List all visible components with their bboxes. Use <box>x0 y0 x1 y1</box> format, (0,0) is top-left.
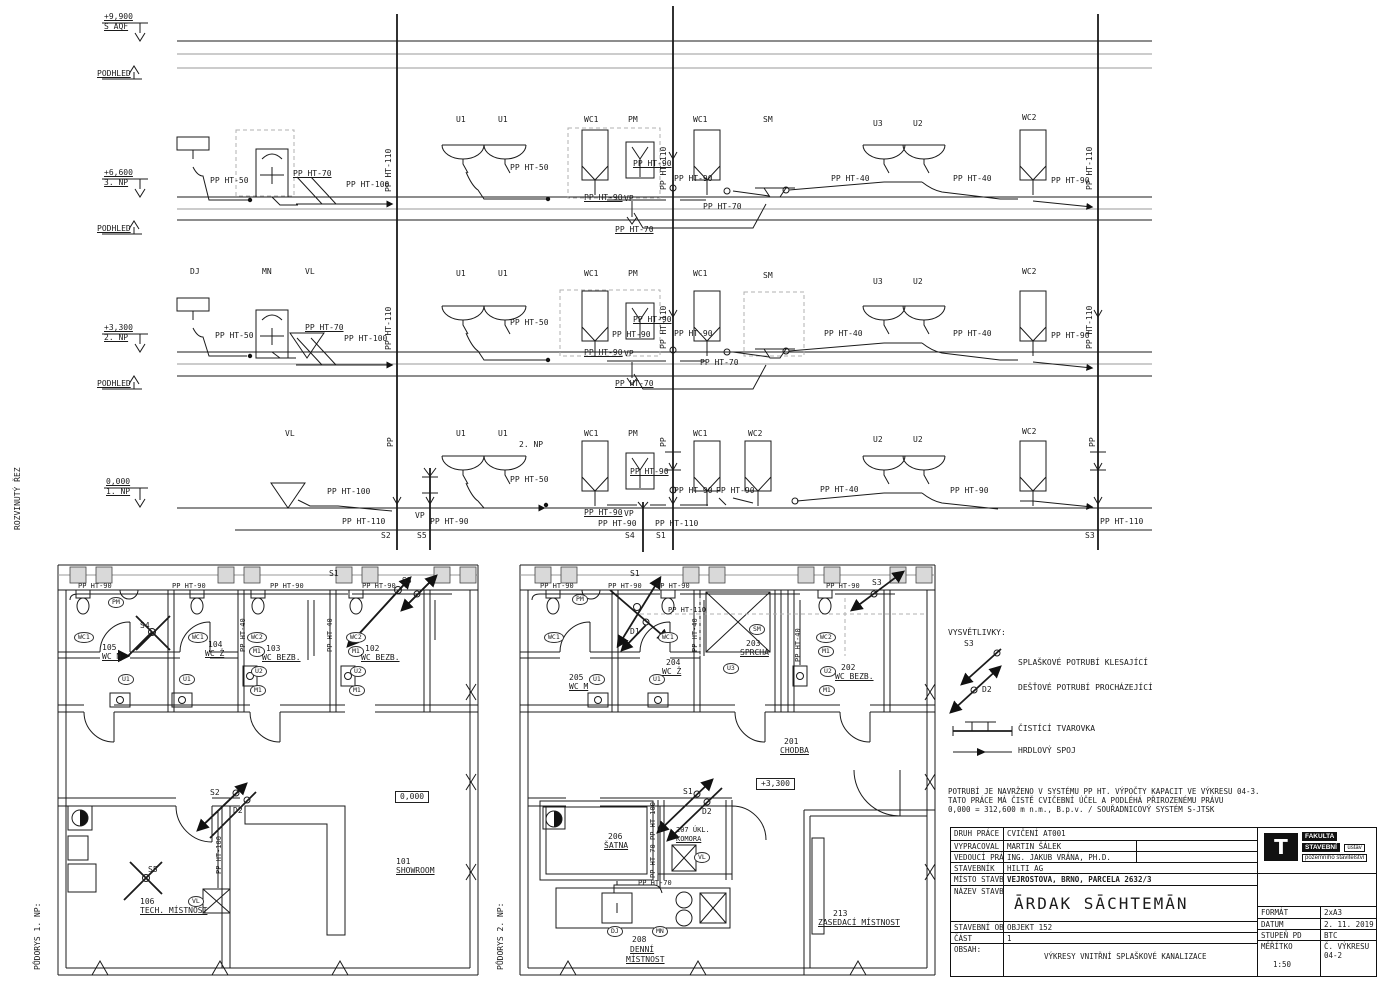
fixture-tag: WC2 <box>346 632 366 643</box>
fixture-tag: U1 <box>589 674 605 685</box>
drawing-label: PP HT-90 <box>1051 332 1090 340</box>
drawing-label: PP HT-50 <box>510 164 549 172</box>
drawing-label: PP HT-100 <box>216 836 223 874</box>
legend-item-cleanout: ČISTÍCÍ TVAROVKA <box>1018 724 1095 733</box>
drawing-label: WC BEZB. <box>262 654 301 662</box>
drawing-label: D2 <box>982 686 992 694</box>
tb-label-nazev: NÁZEV STAVBY <box>951 885 1003 921</box>
drawing-label: PP HT-70 <box>615 226 654 234</box>
drawing-label: PODHLED <box>97 70 131 78</box>
tb-datum-label: DATUM <box>1257 918 1320 929</box>
drawing-label: PP HT-100 <box>327 488 370 496</box>
drawing-label: PP HT-110 <box>385 307 393 350</box>
tb-vykres-value: 04-2 <box>1324 951 1342 960</box>
drawing-label: S5 <box>417 532 427 540</box>
drawing-label: U1 <box>456 430 466 438</box>
fixture-tag: WC2 <box>247 632 267 643</box>
tb-value-obsah: VÝKRESY VNITŘNÍ SPLAŠKOVÉ KANALIZACE <box>1003 943 1257 976</box>
tb-stupen-value: BTC <box>1320 929 1376 940</box>
drawing-label: U2 <box>913 278 923 286</box>
drawing-label: S3 <box>872 579 882 587</box>
drawing-label: PP HT-40 <box>953 330 992 338</box>
drawing-label: 0,000 <box>106 478 130 486</box>
drawing-label: PP <box>387 437 395 447</box>
section-linework <box>102 6 1152 552</box>
drawing-label: WC1 <box>584 116 598 124</box>
drawing-label: WC M <box>102 653 121 661</box>
fixture-tag: U1 <box>118 674 134 685</box>
drawing-label: WC2 <box>1022 428 1036 436</box>
drawing-label: +3,300 <box>756 778 795 790</box>
drawing-label: PP HT-110 <box>1086 306 1094 349</box>
fixture-tag: M1 <box>818 646 834 657</box>
drawing-label: VP <box>624 350 634 358</box>
fixture-tag: WC1 <box>74 632 94 643</box>
legend-item-socket: HRDLOVÝ SPOJ <box>1018 746 1076 755</box>
drawing-label: VP <box>624 195 634 203</box>
fixture-tag: VL <box>694 852 710 863</box>
tb-label-stavebnik: STAVEBNÍK <box>951 862 1003 873</box>
drawing-label: MN <box>262 268 272 276</box>
tb-empty-1 <box>1136 840 1257 851</box>
tb-format-value: 2xA3 <box>1320 906 1376 918</box>
drawing-label: +6,600 <box>104 169 133 177</box>
drawing-label: PP HT-110 <box>660 306 668 349</box>
drawing-label: PP HT-50 <box>510 319 549 327</box>
drawing-label: 207 ÚKL. <box>676 827 710 834</box>
tb-label-objekt: STAVEBNÍ OBJEKT <box>951 921 1003 932</box>
drawing-label: WC2 <box>1022 114 1036 122</box>
tb-value-druh: CVIČENÍ AT001 <box>1003 828 1257 840</box>
drawing-label: PP HT-70 <box>305 324 344 332</box>
drawing-label: DJ <box>190 268 200 276</box>
drawing-label: S3 <box>402 577 412 585</box>
tb-blank-cell <box>1257 873 1376 906</box>
tb-meritko-cell: MĚŘÍTKO 1:50 <box>1257 940 1320 976</box>
drawing-label: 2. NP <box>104 334 128 342</box>
drawing-label: SHOWROOM <box>396 867 435 875</box>
drawing-label: PP HT-40 <box>327 618 334 652</box>
drawing-label: PP HT-90 <box>584 349 623 357</box>
drawing-label: S4 <box>625 532 635 540</box>
note-line-3: 0,000 = 312,600 m n.m., B.p.v. / SOUŘADN… <box>948 805 1214 814</box>
drawing-label: PM <box>628 116 638 124</box>
drawing-label: WC2 <box>1022 268 1036 276</box>
drawing-label: SM <box>763 272 773 280</box>
drawing-label: PP HT-90 <box>656 583 690 590</box>
tb-value-stavebnik: HILTI AG <box>1003 862 1257 873</box>
fixture-tag: M1 <box>819 685 835 696</box>
title-block: DRUH PRÁCE VYPRACOVAL VEDOUCÍ PRÁCE STAV… <box>950 827 1377 977</box>
drawing-label: S3 <box>964 640 974 648</box>
drawing-label: PP HT-90 <box>598 520 637 528</box>
drawing-label: PP HT-110 <box>1086 147 1094 190</box>
drawing-label: S2 <box>210 789 220 797</box>
drawing-label: D2 <box>702 808 712 816</box>
drawing-label: D1 <box>630 628 640 636</box>
drawing-label: PP HT-50 <box>210 177 249 185</box>
drawing-label: PP HT-50 <box>215 332 254 340</box>
drawing-label: PP HT-90 <box>716 487 755 495</box>
drawing-label: PP HT-50 <box>510 476 549 484</box>
drawing-label: PP HT-90 <box>630 468 669 476</box>
drawing-label: PP HT-90 <box>674 330 713 338</box>
note-line-2: TATO PRÁCE MÁ ČISTĚ CVIČEBNÍ ÚČEL A PODL… <box>948 796 1223 805</box>
tb-meritko-value: 1:50 <box>1261 960 1291 969</box>
drawing-label: PP HT-100 <box>346 181 389 189</box>
drawing-label: TECH. MÍSTNOST <box>140 907 207 915</box>
drawing-label: U2 <box>873 436 883 444</box>
drawing-label: VL <box>285 430 295 438</box>
drawing-label: PODHLED <box>97 380 131 388</box>
tb-value-misto: VEJROSTOVA, BRNO, PARCELA 2632/3 <box>1003 873 1257 885</box>
drawing-label: 208 <box>632 936 646 944</box>
drawing-label: PP HT-100 <box>650 802 657 840</box>
drawing-label: PP HT-90 <box>540 583 574 590</box>
plan2-linework <box>520 565 935 975</box>
tb-value-nazev: ĀRDAK SĀCHTEMĀN <box>1003 885 1257 921</box>
drawing-label: U1 <box>456 116 466 124</box>
drawing-label: PP HT-90 <box>172 583 206 590</box>
tb-vykres-cell: Č. VÝKRESU 04-2 <box>1320 940 1376 976</box>
tb-value-objekt: OBJEKT 152 <box>1003 921 1257 932</box>
drawing-label: S3 <box>1085 532 1095 540</box>
drawing-label: PP HT-70 <box>700 359 739 367</box>
drawing-label: PP HT-90 <box>78 583 112 590</box>
drawing-label: PP HT-90 <box>674 487 713 495</box>
drawing-label: U2 <box>913 120 923 128</box>
drawing-label: PP HT-70 <box>703 203 742 211</box>
tb-label-obsah: OBSAH: <box>951 943 1003 976</box>
fixture-tag: M1 <box>250 685 266 696</box>
fixture-tag: WC1 <box>188 632 208 643</box>
drawing-label: PP HT-110 <box>385 149 393 192</box>
drawing-label: PP HT-70 <box>650 844 657 878</box>
fixture-tag: DJ <box>607 926 623 937</box>
drawing-label: PP HT-110 <box>668 607 706 614</box>
drawing-label: U2 <box>913 436 923 444</box>
drawing-label: WC BEZB. <box>835 673 874 681</box>
drawing-label: WC1 <box>693 116 707 124</box>
drawing-label: PP HT-90 <box>362 583 396 590</box>
drawing-label: CHODBA <box>780 747 809 755</box>
drawing-sheet: +9,900S AQFPODHLED+6,6003. NPPODHLED+3,3… <box>0 0 1400 990</box>
drawing-label: S AQF <box>104 23 128 31</box>
drawing-label: WC Ž <box>205 650 224 658</box>
fixture-tag: MN <box>652 926 668 937</box>
drawing-label: PP <box>660 437 668 447</box>
drawing-label: WC2 <box>748 430 762 438</box>
logo-line-pozemniho: pozemního stavitelství <box>1302 854 1367 862</box>
tb-value-vypracoval: MARTIN ŠÁLEK <box>1003 840 1136 851</box>
drawing-label: U1 <box>498 430 508 438</box>
drawing-label: +9,900 <box>104 13 133 21</box>
logo-line-fakulta: FAKULTA <box>1302 832 1337 841</box>
drawing-label: VP <box>415 512 425 520</box>
drawing-label: PP HT-90 <box>674 175 713 183</box>
tb-empty-2 <box>1136 851 1257 862</box>
drawing-label: PP HT-40 <box>831 175 870 183</box>
tb-value-cast: 1 <box>1003 932 1257 943</box>
tb-label-cast: ČÁST <box>951 932 1003 943</box>
drawing-label: D2 <box>233 807 243 815</box>
drawing-label: PP HT-70 <box>293 170 332 178</box>
fixture-tag: WC2 <box>816 632 836 643</box>
drawing-label: WC Ž <box>662 668 681 676</box>
fixture-tag: U2 <box>350 666 366 677</box>
drawing-label: U1 <box>498 116 508 124</box>
drawing-label: PP HT-100 <box>344 335 387 343</box>
drawing-label: PP HT-40 <box>953 175 992 183</box>
drawing-label: PP HT-90 <box>950 487 989 495</box>
tb-logo-cell: T FAKULTA STAVEBNÍ ústav pozemního stavi… <box>1257 828 1376 873</box>
drawing-label: PP HT-90 <box>584 194 623 202</box>
drawing-label: PP HT-110 <box>1100 518 1143 526</box>
fixture-tag: PM <box>572 594 588 605</box>
drawing-label: S2 <box>381 532 391 540</box>
drawing-label: PP HT-90 <box>826 583 860 590</box>
tb-format-label: FORMÁT <box>1257 906 1320 918</box>
drawing-label: PP HT-70 <box>615 380 654 388</box>
drawing-label: S5 <box>148 866 158 874</box>
fixture-tag: WC1 <box>544 632 564 643</box>
drawing-label: S1 <box>630 570 640 578</box>
fixture-tag: U1 <box>179 674 195 685</box>
tb-value-vedouci: ING. JAKUB VRÁNA, PH.D. <box>1003 851 1136 862</box>
tb-label-druh: DRUH PRÁCE <box>951 828 1003 840</box>
tb-vykres-label: Č. VÝKRESU <box>1324 942 1369 951</box>
drawing-label: S1 <box>683 788 693 796</box>
drawing-label: PP HT-90 <box>1051 177 1090 185</box>
drawing-label: WC1 <box>693 430 707 438</box>
tb-stupen-label: STUPEŇ PD <box>1257 929 1320 940</box>
fixture-tag: PM <box>108 597 124 608</box>
tb-meritko-label: MĚŘÍTKO <box>1261 942 1293 951</box>
drawing-label: U1 <box>498 270 508 278</box>
drawing-label: 2. NP <box>519 441 543 449</box>
drawing-label: SM <box>763 116 773 124</box>
drawing-label: S1 <box>329 570 339 578</box>
drawing-label: PM <box>628 430 638 438</box>
note-line-1: POTRUBÍ JE NAVRŽENO V SYSTÉMU PP HT. VÝP… <box>948 787 1260 796</box>
drawing-label: WC1 <box>693 270 707 278</box>
drawing-label: PP HT-110 <box>660 147 668 190</box>
drawing-label: DENNÍ <box>630 946 654 954</box>
fixture-tag: U2 <box>820 666 836 677</box>
drawing-label: WC BEZB. <box>361 654 400 662</box>
drawing-label: PP HT-40 <box>692 618 699 652</box>
drawing-label: U1 <box>456 270 466 278</box>
drawing-label: S4 <box>140 622 150 630</box>
drawing-label: PM <box>628 270 638 278</box>
drawing-label: PP HT-90 <box>612 331 651 339</box>
drawing-label: PP HT-40 <box>824 330 863 338</box>
drawing-label: PP HT-70 <box>638 880 672 887</box>
drawing-label: PP HT-90 <box>430 518 469 526</box>
drawing-label: VP <box>624 510 634 518</box>
drawing-label: VL <box>305 268 315 276</box>
drawing-label: PŮDORYS 1. NP: <box>34 903 42 970</box>
drawing-label: PODHLED <box>97 225 131 233</box>
drawing-label: PP HT-110 <box>342 518 385 526</box>
fixture-tag: M1 <box>349 685 365 696</box>
drawing-label: PP HT-90 <box>608 583 642 590</box>
legend-title: VYSVĚTLIVKY: <box>948 628 1006 637</box>
tb-label-vypracoval: VYPRACOVAL <box>951 840 1003 851</box>
drawing-label: KOMORA <box>676 836 701 843</box>
drawing-label: PP <box>1089 437 1097 447</box>
drawing-label: S1 <box>656 532 666 540</box>
tb-label-misto: MÍSTO STAVBY <box>951 873 1003 885</box>
drawing-label: ROZVINUTÝ ŘEZ <box>14 467 22 530</box>
legend-item-descending: SPLAŠKOVÉ POTRUBÍ KLESAJÍCÍ <box>1018 658 1148 667</box>
legend-item-rain: DEŠŤOVÉ POTRUBÍ PROCHÁZEJÍCÍ <box>1018 683 1153 692</box>
drawing-label: ŠATNA <box>604 842 628 850</box>
fixture-tag: U3 <box>723 663 739 674</box>
fixture-tag: SM <box>749 624 765 635</box>
drawing-label: WC M <box>569 683 588 691</box>
drawing-label: SPRCHA <box>740 649 769 657</box>
drawing-label: 1. NP <box>106 488 130 496</box>
drawing-label: +3,300 <box>104 324 133 332</box>
drawing-label: PP HT-90 <box>584 509 623 517</box>
logo-line-ustav: ústav <box>1344 844 1364 852</box>
drawing-label: ZASEDACÍ MÍSTNOST <box>818 919 900 927</box>
drawing-label: PP HT-40 <box>795 628 802 662</box>
drawing-label: PŮDORYS 2. NP: <box>497 903 505 970</box>
plan1-linework <box>58 565 478 975</box>
tb-label-vedouci: VEDOUCÍ PRÁCE <box>951 851 1003 862</box>
drawing-label: U3 <box>873 120 883 128</box>
drawing-label: 3. NP <box>104 179 128 187</box>
legend-symbols <box>951 649 1012 756</box>
drawing-label: PP HT-40 <box>240 618 247 652</box>
logo-line-stavebni: STAVEBNÍ <box>1302 843 1340 852</box>
drawing-label: WC1 <box>584 430 598 438</box>
drawing-label: 0,000 <box>395 791 429 803</box>
drawing-label: PP HT-40 <box>820 486 859 494</box>
drawing-label: PP HT-110 <box>655 520 698 528</box>
faculty-logo-icon: T <box>1264 833 1298 861</box>
fixture-tag: WC1 <box>658 632 678 643</box>
drawing-label: MÍSTNOST <box>626 956 665 964</box>
drawing-label: WC1 <box>584 270 598 278</box>
drawing-label: U3 <box>873 278 883 286</box>
tb-datum-value: 2. 11. 2019 <box>1320 918 1376 929</box>
drawing-label: PP HT-90 <box>270 583 304 590</box>
fixture-tag: U2 <box>251 666 267 677</box>
